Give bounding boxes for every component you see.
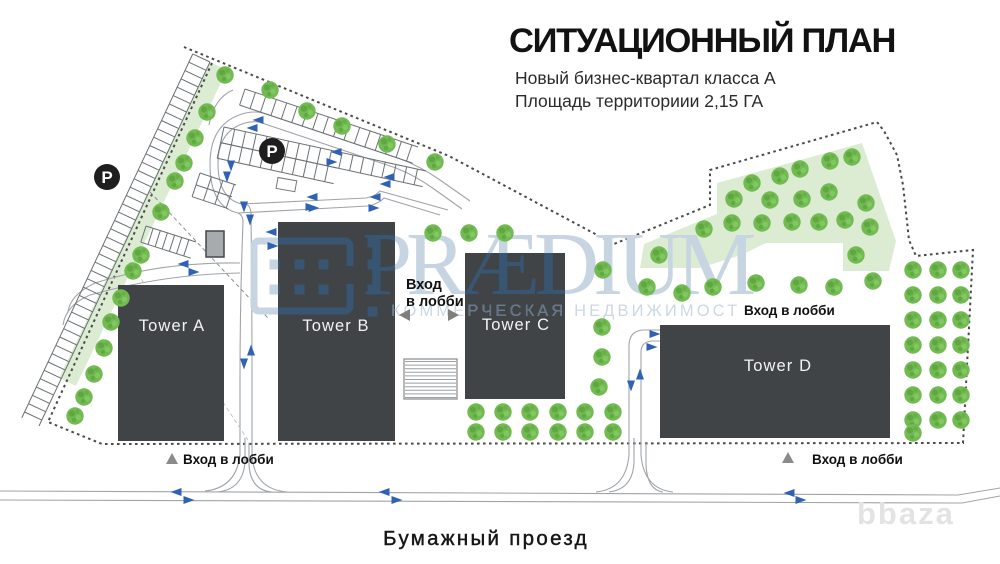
svg-text:Tower B: Tower B — [302, 317, 369, 335]
svg-text:Вход в лобби: Вход в лобби — [744, 303, 835, 318]
svg-text:СИТУАЦИОННЫЙ ПЛАН: СИТУАЦИОННЫЙ ПЛАН — [509, 20, 895, 60]
svg-text:Вход в лобби: Вход в лобби — [812, 452, 903, 467]
svg-text:P: P — [101, 168, 112, 187]
svg-text:Бумажный проезд: Бумажный проезд — [383, 527, 589, 550]
svg-text:Вход в лобби: Вход в лобби — [183, 452, 274, 467]
svg-text:P: P — [266, 142, 277, 161]
svg-text:bbaza: bbaza — [857, 496, 955, 531]
svg-text:Tower D: Tower D — [744, 357, 812, 375]
svg-text:Вход: Вход — [406, 277, 442, 293]
svg-text:Tower A: Tower A — [139, 317, 205, 335]
svg-text:Площадь территориии 2,15 ГА: Площадь территориии 2,15 ГА — [515, 91, 764, 111]
svg-text:Новый бизнес-квартал класса А: Новый бизнес-квартал класса А — [515, 68, 776, 88]
svg-text:в лобби: в лобби — [406, 294, 464, 310]
